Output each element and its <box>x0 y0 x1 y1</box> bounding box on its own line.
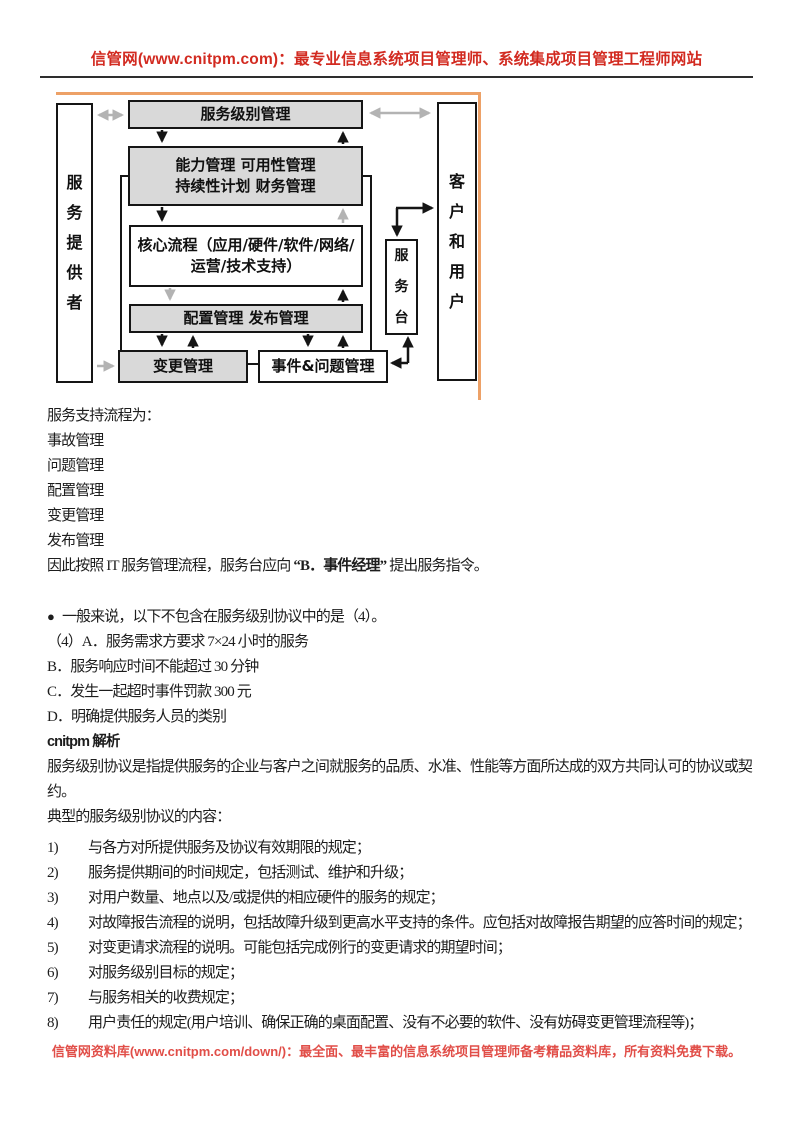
list-item: 7)与服务相关的收费规定； <box>47 986 755 1011</box>
core-process-label: 核心流程（应用/硬件/软件/网络/运营/技术支持） <box>136 235 356 277</box>
support-process-item: 事故管理 <box>47 429 755 454</box>
tactical-processes-box: 能力管理 可用性管理 持续性计划 财务管理 <box>128 146 363 206</box>
list-item: 8)用户责任的规定(用户培训、确保正确的桌面配置、没有不必要的软件、没有妨碍变更… <box>47 1011 755 1036</box>
sla-content-list: 1)与各方对所提供服务及协议有效期限的规定； 2)服务提供期间的时间规定，包括测… <box>47 836 755 1036</box>
support-process-title: 服务支持流程为： <box>47 404 755 429</box>
conclusion-suffix: 提出服务指令。 <box>389 558 488 574</box>
site-footer-text: 信管网资料库(www.cnitpm.com/down/)：最全面、最丰富的信息系… <box>0 1041 793 1060</box>
tactical-processes-line2: 持续性计划 财务管理 <box>175 176 315 197</box>
tactical-processes-line1: 能力管理 可用性管理 <box>175 155 315 176</box>
support-process-item: 问题管理 <box>47 454 755 479</box>
support-process-item: 发布管理 <box>47 529 755 554</box>
incident-problem-box: 事件&问题管理 <box>258 350 388 383</box>
service-provider-box: 服务提供者 <box>56 103 93 383</box>
service-desk-label: 服务台 <box>394 241 409 334</box>
service-desk-box: 服务台 <box>385 239 418 335</box>
question-section: ●一般来说，以下不包含在服务级别协议中的是（4）。 （4）A．服务需求方要求 7… <box>47 604 755 730</box>
option-c: C．发生一起超时事件罚款 300 元 <box>47 680 755 705</box>
list-item: 5)对变更请求流程的说明。可能包括完成例行的变更请求的期望时间； <box>47 936 755 961</box>
support-process-item: 配置管理 <box>47 479 755 504</box>
option-b: B．服务响应时间不能超过 30 分钟 <box>47 655 755 680</box>
itsm-diagram: 服务提供者 客户和用户 服务级别管理 能力管理 可用性管理 持续性计划 财务管理… <box>56 92 484 400</box>
list-item: 2)服务提供期间的时间规定，包括测试、维护和升级； <box>47 861 755 886</box>
change-mgmt-box: 变更管理 <box>118 350 248 383</box>
diagram-top-border <box>56 92 481 95</box>
config-release-label: 配置管理 发布管理 <box>183 308 308 329</box>
list-item: 4)对故障报告流程的说明，包括故障升级到更高水平支持的条件。应包括对故障报告期望… <box>47 911 755 936</box>
service-provider-label: 服务提供者 <box>66 168 84 318</box>
list-item: 6)对服务级别目标的规定； <box>47 961 755 986</box>
conclusion-answer: “B．事件经理” <box>293 558 386 574</box>
incident-problem-label: 事件&问题管理 <box>271 356 374 377</box>
analysis-section: cnitpm 解析 服务级别协议是指提供服务的企业与客户之间就服务的品质、水准、… <box>47 730 755 1036</box>
customer-user-label: 客户和用户 <box>448 167 466 317</box>
conclusion-prefix: 因此按照 IT 服务管理流程，服务台应向 <box>47 558 290 574</box>
document-page: 信管网(www.cnitpm.com)：最专业信息系统项目管理师、系统集成项目管… <box>0 0 793 1122</box>
analysis-paragraph: 服务级别协议是指提供服务的企业与客户之间就服务的品质、水准、性能等方面所达成的双… <box>47 755 755 805</box>
question-line: ●一般来说，以下不包含在服务级别协议中的是（4）。 <box>47 604 755 630</box>
change-mgmt-label: 变更管理 <box>153 356 213 377</box>
customer-user-box: 客户和用户 <box>437 102 477 381</box>
document-body: 服务支持流程为： 事故管理 问题管理 配置管理 变更管理 发布管理 因此按照 I… <box>47 404 755 1036</box>
core-process-box: 核心流程（应用/硬件/软件/网络/运营/技术支持） <box>129 225 363 287</box>
service-level-mgmt-box: 服务级别管理 <box>128 100 363 129</box>
diagram-right-border <box>478 92 481 400</box>
option-d: D．明确提供服务人员的类别 <box>47 705 755 730</box>
question-text: 一般来说，以下不包含在服务级别协议中的是（4）。 <box>62 609 385 625</box>
service-level-mgmt-label: 服务级别管理 <box>200 104 290 125</box>
header-divider <box>40 76 753 78</box>
conclusion-line: 因此按照 IT 服务管理流程，服务台应向“B．事件经理”提出服务指令。 <box>47 554 755 579</box>
option-a: （4）A．服务需求方要求 7×24 小时的服务 <box>47 630 755 655</box>
analysis-title: cnitpm 解析 <box>47 730 755 755</box>
support-process-item: 变更管理 <box>47 504 755 529</box>
bullet-icon: ● <box>47 609 54 624</box>
analysis-subtitle: 典型的服务级别协议的内容： <box>47 805 755 830</box>
config-release-box: 配置管理 发布管理 <box>129 304 363 333</box>
site-header-text: 信管网(www.cnitpm.com)：最专业信息系统项目管理师、系统集成项目管… <box>0 47 793 69</box>
list-item: 1)与各方对所提供服务及协议有效期限的规定； <box>47 836 755 861</box>
list-item: 3)对用户数量、地点以及/或提供的相应硬件的服务的规定； <box>47 886 755 911</box>
